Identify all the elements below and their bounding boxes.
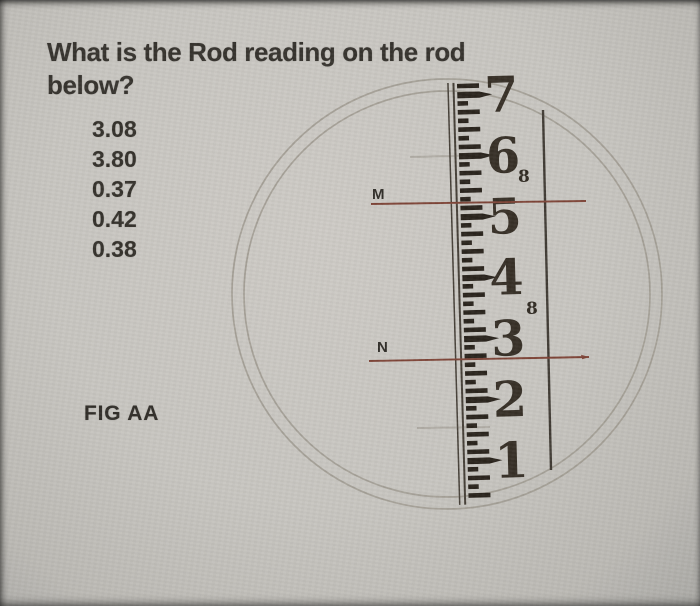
rod-minor-tick: [463, 292, 485, 297]
rod-scale-number: 6: [485, 126, 521, 185]
rod-minor-tick: [465, 380, 476, 385]
rod-minor-tick: [462, 258, 473, 263]
rod-minor-tick: [466, 414, 488, 419]
rod-minor-tick: [462, 249, 484, 254]
crosshair-m-label: M: [372, 186, 385, 203]
crosshair-n-label: N: [377, 339, 388, 356]
rod-minor-tick: [468, 467, 479, 472]
telescope-circle-outline: [244, 91, 650, 497]
rod-scale-number: 7: [483, 65, 519, 124]
rod-minor-tick: [459, 144, 481, 149]
rod-minor-tick: [465, 362, 476, 367]
rod-minor-tick: [464, 327, 486, 332]
rod-minor-tick: [465, 353, 487, 358]
rod-minor-tick: [465, 388, 487, 393]
rod-left-edge-line: [448, 83, 460, 505]
exam-photo: What is the Rod reading on the rod below…: [0, 0, 700, 606]
rod-minor-tick: [462, 266, 484, 271]
rod-minor-tick: [460, 188, 482, 193]
rod-subscript-8: 8: [518, 167, 530, 187]
rod-minor-tick: [463, 284, 474, 289]
telescope-circle-outline: [232, 79, 662, 509]
rod-minor-tick: [458, 109, 480, 114]
leveling-rod: 7654321: [447, 65, 529, 505]
rod-minor-tick: [467, 441, 478, 446]
rod-minor-tick: [464, 345, 475, 350]
rod-minor-tick: [459, 162, 470, 167]
rod-minor-tick: [460, 197, 471, 202]
crosshair-upper-line: [371, 201, 586, 204]
rod-minor-tick: [460, 179, 471, 184]
crosshair-arrow-tip: [581, 355, 589, 359]
rod-minor-tick: [461, 240, 472, 245]
rod-minor-tick: [464, 319, 475, 324]
rod-scale-number: 1: [494, 431, 530, 490]
rod-minor-tick: [465, 371, 487, 376]
rod-minor-tick: [468, 493, 490, 498]
rod-minor-tick: [467, 449, 489, 454]
rod-minor-tick: [463, 301, 474, 306]
rod-scale-number: 4: [489, 248, 525, 307]
rod-subscript-8: 8: [526, 299, 538, 319]
rod-minor-tick: [459, 170, 481, 175]
rod-minor-tick: [466, 423, 477, 428]
rod-minor-tick: [461, 231, 483, 236]
rod-scale-number: 2: [492, 370, 528, 429]
rod-minor-tick: [463, 310, 485, 315]
rod-minor-tick: [458, 136, 469, 141]
rod-minor-tick: [461, 223, 472, 228]
rod-scale-number: 5: [487, 187, 523, 246]
telescope-view-figure: 765432188 M N: [0, 0, 700, 606]
rod-minor-tick: [457, 83, 479, 88]
rod-minor-tick: [458, 118, 469, 123]
rod-minor-tick: [457, 101, 468, 106]
rod-minor-tick: [460, 205, 482, 210]
pencil-mark-line: [417, 427, 490, 428]
page-content: What is the Rod reading on the rod below…: [0, 0, 700, 606]
rod-right-edge-line: [543, 110, 551, 470]
rod-minor-tick: [467, 432, 489, 437]
rod-minor-tick: [458, 127, 480, 132]
rod-minor-tick: [466, 406, 477, 411]
rod-minor-tick: [468, 475, 490, 480]
rod-minor-tick: [468, 484, 479, 489]
